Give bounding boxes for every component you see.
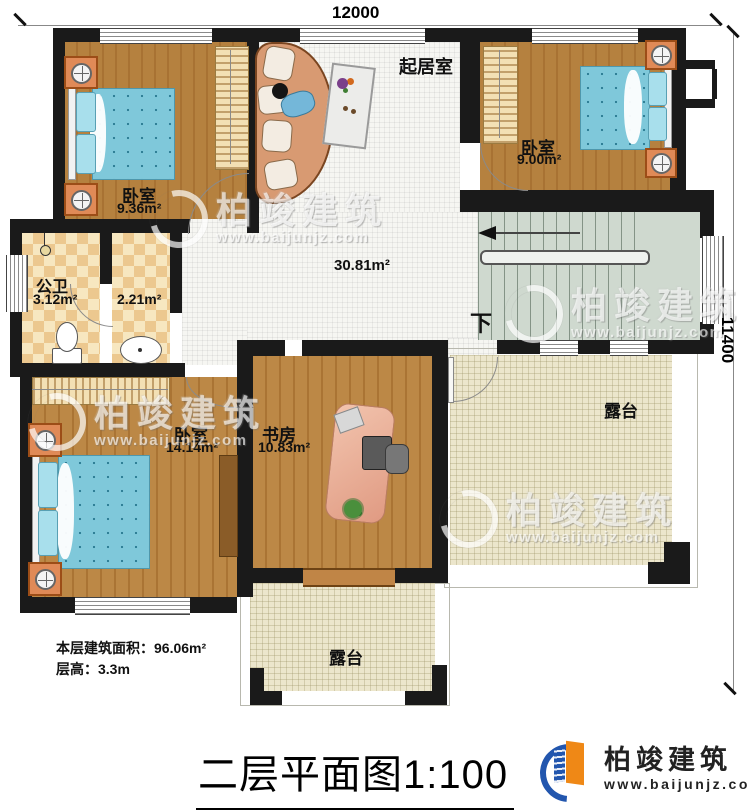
closet-bedroom-top-right xyxy=(483,46,518,144)
floor-terrace-bottom xyxy=(250,583,435,691)
lamp-icon xyxy=(71,190,92,211)
sliding-door-study xyxy=(303,568,395,587)
closet-bedroom-top-left xyxy=(215,46,249,170)
room-area-study: 10.83m² xyxy=(258,439,310,455)
wall xyxy=(253,340,285,356)
room-label-terrace-bottom: 露台 xyxy=(329,644,363,669)
plant xyxy=(344,500,362,518)
nightstand xyxy=(645,40,677,70)
balcony-window xyxy=(686,69,717,99)
floor-plan-canvas: 下 卧室 9.36m² 起居室 30.81m² 卧室 9.00m² 公卫 3.1… xyxy=(0,0,750,810)
stair-walk-line xyxy=(496,232,580,234)
plan-title: 二层平面图1:100 xyxy=(196,742,514,810)
balcony-wall xyxy=(686,60,715,69)
wall xyxy=(460,28,480,143)
sofa-cushion xyxy=(263,157,300,191)
washbasin-drain xyxy=(138,348,142,352)
room-area-bedroom-bottom: 14.14m² xyxy=(166,439,218,455)
wall xyxy=(700,212,714,238)
room-area-bathroom: 3.12m² xyxy=(33,291,77,307)
balcony-wall xyxy=(686,99,715,108)
dimension-line-top xyxy=(18,25,720,26)
bed-blanket-fold xyxy=(56,463,74,559)
nightstand xyxy=(28,423,62,457)
closet-rail xyxy=(499,50,500,138)
stair-railing xyxy=(480,250,650,265)
lamp-icon xyxy=(71,63,92,84)
dimension-label-top: 12000 xyxy=(332,3,379,23)
floor-area-info: 本层建筑面积：96.06m² xyxy=(56,638,206,658)
nightstand xyxy=(64,183,98,216)
dimension-tick xyxy=(723,682,736,695)
toilet-bowl xyxy=(56,322,78,352)
dimension-label-right: 11400 xyxy=(717,317,737,363)
logo-building-orange xyxy=(566,741,584,786)
room-area-living: 30.81m² xyxy=(334,257,390,274)
bedside-bench xyxy=(219,455,238,557)
window xyxy=(6,255,28,312)
bed-blanket-fold xyxy=(624,70,642,144)
wall xyxy=(10,219,190,233)
wall xyxy=(432,340,448,583)
room-area-bedroom-top-right: 9.00m² xyxy=(517,151,561,167)
pillow xyxy=(76,92,96,132)
closet-rail xyxy=(32,389,168,390)
window xyxy=(300,28,425,44)
logo-building-blue xyxy=(554,747,565,782)
table-items xyxy=(343,106,348,111)
pillow xyxy=(38,510,58,556)
room-area-bedroom-top-left: 9.36m² xyxy=(117,200,161,216)
room-label-terrace-right: 露台 xyxy=(604,397,638,422)
pillow xyxy=(38,462,58,508)
window xyxy=(540,340,578,356)
lamp-icon xyxy=(35,430,56,451)
desk-chair xyxy=(385,444,409,474)
wall xyxy=(237,340,253,597)
stair-direction-arrow xyxy=(478,226,496,240)
company-logo-icon xyxy=(538,738,596,800)
company-logo: 柏竣建筑 www.baijunjz.com xyxy=(538,738,750,800)
nightstand xyxy=(64,56,98,89)
wall xyxy=(395,568,448,583)
wall xyxy=(460,190,714,212)
room-area-antechamber: 2.21m² xyxy=(117,291,161,307)
window xyxy=(100,28,212,44)
closet-bedroom-bottom xyxy=(32,377,170,405)
pull-light xyxy=(40,245,51,256)
terrace-post xyxy=(250,691,282,705)
wall xyxy=(700,322,714,354)
wall xyxy=(10,312,22,363)
lamp-icon xyxy=(35,569,56,590)
pillow xyxy=(76,134,96,174)
wall xyxy=(190,597,237,613)
terrace-post xyxy=(648,562,690,584)
wall xyxy=(10,363,185,377)
company-name: 柏竣建筑 xyxy=(604,746,750,776)
window xyxy=(75,597,190,615)
window xyxy=(610,340,648,356)
person-head xyxy=(272,83,288,99)
closet-rail xyxy=(230,50,231,164)
pillow xyxy=(648,107,667,141)
wall xyxy=(20,597,75,613)
bed-headboard xyxy=(68,88,76,180)
window xyxy=(532,28,638,44)
lamp-icon xyxy=(651,153,672,174)
sofa-cushion xyxy=(261,119,293,153)
terrace-post xyxy=(405,691,447,705)
wall xyxy=(10,233,22,255)
stairs-down-label: 下 xyxy=(470,306,492,338)
pillow xyxy=(648,72,667,106)
flowers xyxy=(337,78,348,89)
wall xyxy=(100,233,112,284)
floor-height-info: 层高：3.3m xyxy=(56,659,130,679)
wall xyxy=(302,340,432,356)
nightstand xyxy=(645,148,677,178)
sofa-cushion xyxy=(261,45,296,83)
wall xyxy=(497,340,540,354)
nightstand xyxy=(28,562,62,596)
window xyxy=(702,236,724,324)
wall xyxy=(170,233,182,313)
room-label-living: 起居室 xyxy=(399,53,453,79)
lamp-icon xyxy=(651,45,672,66)
company-url: www.baijunjz.com xyxy=(604,776,750,792)
wall xyxy=(253,568,303,583)
wall xyxy=(578,340,610,354)
